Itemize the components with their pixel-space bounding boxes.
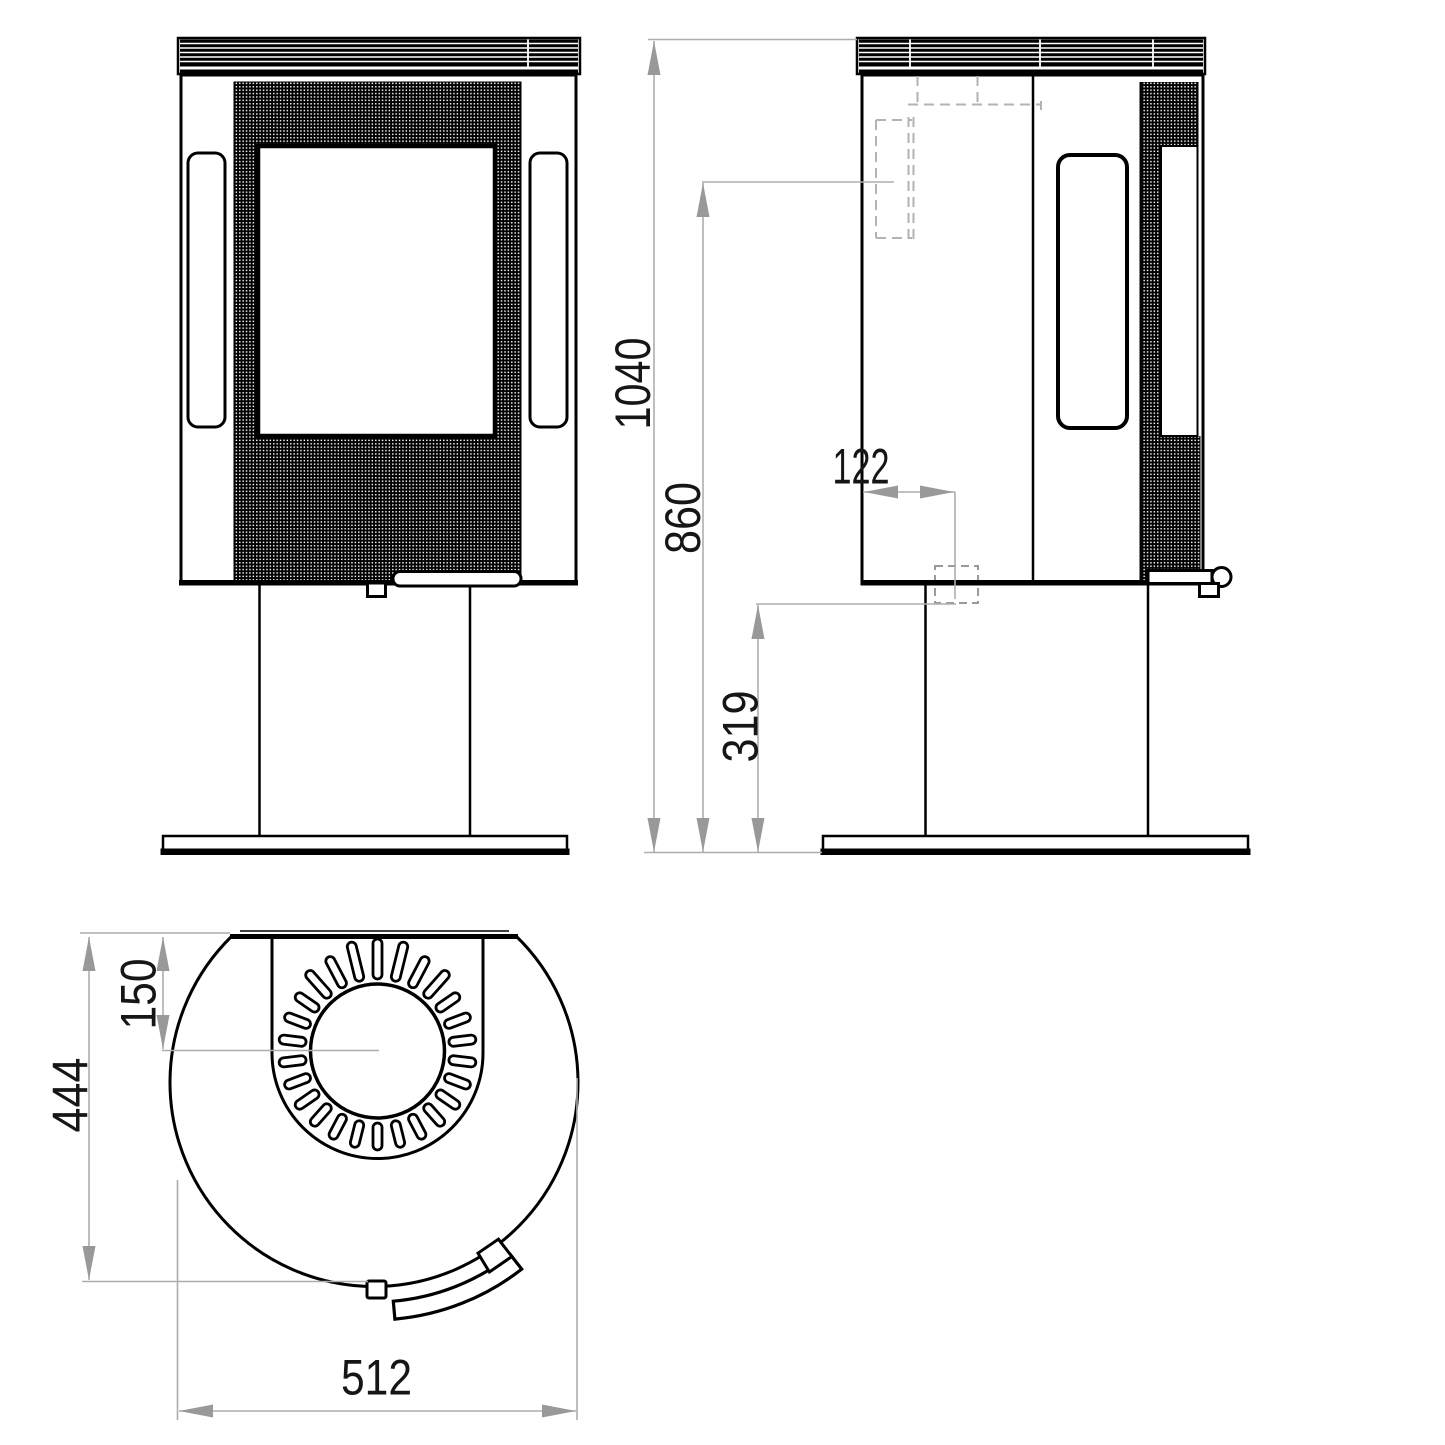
base-plate-side <box>821 836 1251 855</box>
base-plate-front <box>161 836 570 855</box>
dim-flue-from-back-label: 150 <box>111 959 167 1030</box>
air-control-knob-top <box>367 1281 386 1298</box>
dim-overall-height-label: 1040 <box>605 338 661 430</box>
handle-groove-right <box>530 153 567 427</box>
dim-depth-label: 444 <box>43 1058 99 1133</box>
front-view <box>161 38 581 855</box>
dim-rear-connection-height-label: 319 <box>713 691 769 763</box>
handle-groove-side <box>1058 155 1127 428</box>
door-handle-bar <box>393 572 521 587</box>
handle-groove-left <box>188 153 225 427</box>
dim-width-label: 512 <box>341 1350 412 1406</box>
pedestal-front <box>260 586 471 837</box>
top-view <box>162 931 578 1319</box>
combustion-window <box>258 146 495 436</box>
door-handle-side <box>1148 568 1231 597</box>
air-control-knob-front <box>368 583 386 597</box>
drawing-canvas: 1040 860 319 122 150 444 512 <box>0 0 1445 1445</box>
side-window-slot <box>1161 146 1198 436</box>
top-plate-side <box>857 38 1205 74</box>
stove-technical-drawing: 1040 860 319 122 150 444 512 <box>0 0 1445 1445</box>
dim-flue-offset-label: 122 <box>833 439 890 495</box>
pedestal-side <box>926 586 1149 837</box>
top-plate-front <box>178 38 580 74</box>
dim-rear-flue-height-label: 860 <box>655 482 711 554</box>
